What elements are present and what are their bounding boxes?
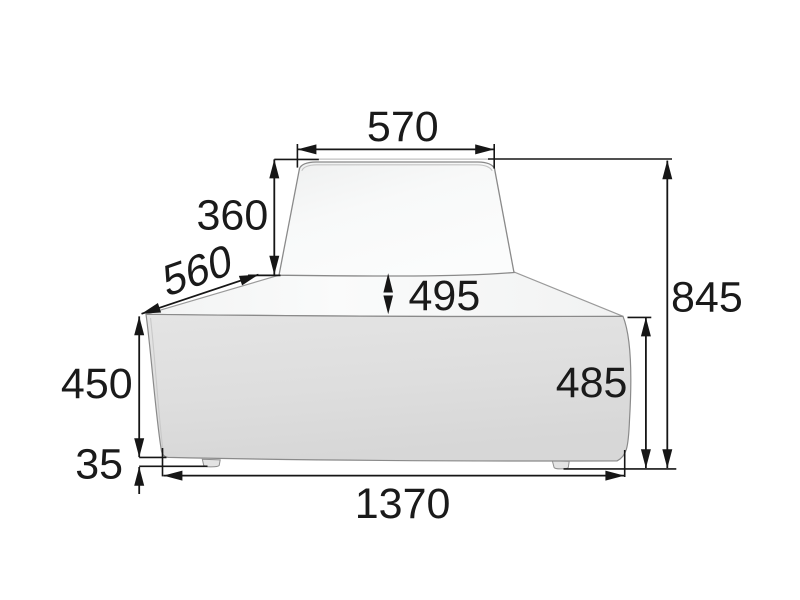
svg-text:1370: 1370 <box>355 480 451 528</box>
svg-text:485: 485 <box>556 359 628 407</box>
svg-text:35: 35 <box>75 440 123 488</box>
svg-text:570: 570 <box>367 103 439 151</box>
svg-text:360: 360 <box>197 191 269 239</box>
svg-text:450: 450 <box>61 360 133 408</box>
svg-text:495: 495 <box>409 272 481 320</box>
svg-text:845: 845 <box>671 273 743 321</box>
